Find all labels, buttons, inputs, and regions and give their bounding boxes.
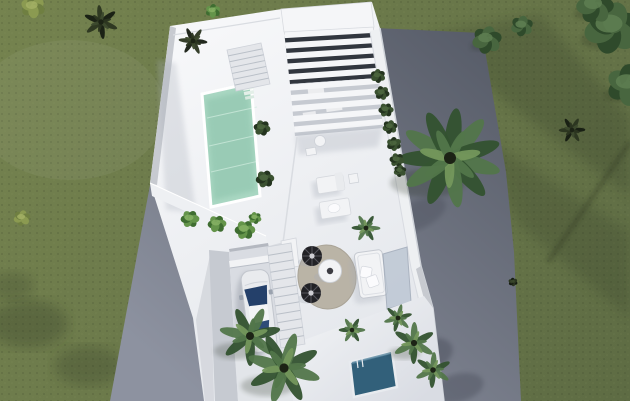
palm-crown [411,340,417,346]
bush-highlight [390,140,397,145]
bush-highlight [382,106,389,111]
bush-highlight [260,175,269,181]
palm-crown [364,226,369,231]
bush-highlight [378,89,385,94]
chair-hub [309,253,314,258]
car-mirror [239,295,244,300]
bush-highlight [209,7,216,12]
palm-crown [396,316,401,321]
bush-highlight [251,215,257,219]
bush-highlight [212,220,221,226]
bush-highlight [396,168,402,172]
sofa [348,249,389,304]
palm-crown [279,363,288,372]
palm-crown [98,19,103,24]
bush-highlight [239,225,249,232]
palm-crown [430,367,436,373]
render-canvas [0,0,630,401]
chair-hub [308,290,313,295]
side-table [348,173,358,183]
aerial-villa-render: Aerial top-down 3D architectural render … [0,0,630,401]
palm-crown [444,152,456,164]
bush-highlight [26,1,38,9]
bush-highlight [393,156,400,161]
palm-crown [191,39,196,44]
pergola [281,2,383,136]
bush-highlight [510,280,515,283]
palm-crown [570,128,575,133]
palm-crown [246,332,254,340]
terrace-chair [315,136,326,147]
car-mirror [268,289,273,294]
table-centerpiece [327,268,333,274]
bush-highlight [515,21,526,28]
bush-highlight [185,215,194,221]
terrace-low-table [306,147,317,155]
rooftop-pool [202,83,260,207]
palm-crown [350,328,355,333]
glass-balustrade [383,247,411,309]
grass-shadow-blob [54,346,122,386]
bush-highlight [386,123,393,128]
bush-highlight [17,214,25,219]
bush-highlight [257,124,265,129]
bush-highlight [374,72,381,77]
bush-highlight [478,33,492,43]
